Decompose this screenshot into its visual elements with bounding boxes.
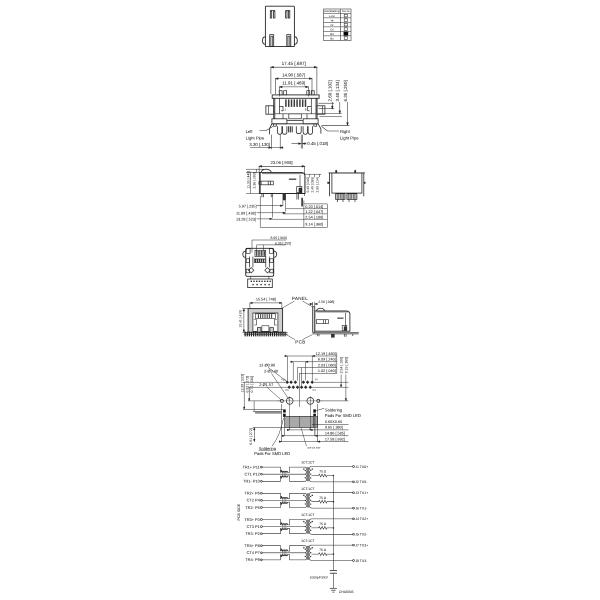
svg-text:14.86 [.585]: 14.86 [.585] xyxy=(325,432,345,436)
svg-text:CT3 P1: CT3 P1 xyxy=(247,524,260,529)
svg-text:1CT:1CT: 1CT:1CT xyxy=(301,513,314,517)
svg-text:CT2 P4: CT2 P4 xyxy=(247,498,261,503)
svg-text:PCB SIDE: PCB SIDE xyxy=(237,503,241,520)
svg-text:1: 1 xyxy=(284,108,286,112)
svg-text:TR2+ P6: TR2+ P6 xyxy=(244,491,259,496)
svg-text:1CT:1CT: 1CT:1CT xyxy=(301,539,314,543)
svg-text:anti-out hole: anti-out hole xyxy=(307,446,321,449)
svg-text:2.03 [.080]: 2.03 [.080] xyxy=(318,363,336,367)
svg-text:2.40 [.095]: 2.40 [.095] xyxy=(311,177,315,193)
svg-text:J8 TX3-: J8 TX3- xyxy=(355,559,368,563)
svg-text:Rd: Rd xyxy=(330,33,334,36)
svg-text:13.29 [.523]: 13.29 [.523] xyxy=(240,374,244,393)
svg-text:17.45 [.687]: 17.45 [.687] xyxy=(282,61,306,66)
svg-text:Light Pipe: Light Pipe xyxy=(340,136,359,141)
svg-text:0.45 [.018]: 0.45 [.018] xyxy=(307,141,328,146)
svg-text:0.76 [.030]: 0.76 [.030] xyxy=(250,376,254,393)
svg-text:0.40 [.016]: 0.40 [.016] xyxy=(306,177,310,193)
svg-text:P1: P1 xyxy=(313,389,317,392)
svg-text:9.14 [.360]: 9.14 [.360] xyxy=(305,223,323,227)
svg-text:5.97 [.235]: 5.97 [.235] xyxy=(239,205,257,209)
svg-text:75 Ω: 75 Ω xyxy=(319,522,327,526)
svg-text:J7 TX3+: J7 TX3+ xyxy=(355,543,368,547)
svg-text:TR3+ P3: TR3+ P3 xyxy=(244,517,259,522)
svg-text:75 Ω: 75 Ω xyxy=(319,496,327,500)
svg-text:75 Ω: 75 Ω xyxy=(319,548,327,552)
svg-text:2.54 [.100]: 2.54 [.100] xyxy=(340,357,344,374)
svg-text:23.06 [.908]: 23.06 [.908] xyxy=(270,160,292,165)
svg-text:J3 TX1+: J3 TX1+ xyxy=(355,491,368,495)
svg-text:15.54 [.748]: 15.54 [.748] xyxy=(256,298,276,302)
svg-text:3.30 [.130]: 3.30 [.130] xyxy=(249,142,270,147)
svg-text:PANEL: PANEL xyxy=(292,296,308,301)
svg-text:12.19 [.480]: 12.19 [.480] xyxy=(316,352,336,356)
svg-text:Right: Right xyxy=(340,129,351,134)
svg-text:11.89 [.438]: 11.89 [.438] xyxy=(236,211,256,215)
svg-text:10.41 [.410]: 10.41 [.410] xyxy=(238,310,242,327)
svg-text:11.91 [.469]: 11.91 [.469] xyxy=(282,81,305,86)
svg-text:1CT:1CT: 1CT:1CT xyxy=(301,461,314,465)
svg-text:0.20 [.014]: 0.20 [.014] xyxy=(305,205,323,209)
svg-text:TR1+ P11: TR1+ P11 xyxy=(242,464,259,469)
svg-text:Soldering: Soldering xyxy=(325,408,343,413)
svg-text:Pads For SMD LED: Pads For SMD LED xyxy=(325,413,361,418)
svg-text:6.91 [.272]: 6.91 [.272] xyxy=(249,428,253,445)
svg-text:6.35 [.250]: 6.35 [.250] xyxy=(343,80,348,101)
svg-text:11.30 [.445]: 11.30 [.445] xyxy=(247,171,251,189)
svg-text:CHASSIS: CHASSIS xyxy=(339,590,355,594)
svg-text:1.22 [.047]: 1.22 [.047] xyxy=(305,210,323,214)
svg-text:TR4+ P8: TR4+ P8 xyxy=(244,543,259,548)
svg-text:PCB: PCB xyxy=(295,339,305,344)
svg-text:P12: P12 xyxy=(281,378,286,381)
svg-text:Part No: Part No xyxy=(342,10,351,13)
svg-text:6.09 [.240]: 6.09 [.240] xyxy=(318,358,336,362)
svg-text:1CT:1CT: 1CT:1CT xyxy=(301,487,314,491)
svg-text:Left: Left xyxy=(246,129,254,134)
svg-text:2-Ø3.40: 2-Ø3.40 xyxy=(264,369,279,374)
svg-text:TR1- P10: TR1- P10 xyxy=(243,479,260,484)
svg-text:Ye: Ye xyxy=(330,19,334,22)
svg-text:9.15 [.360]: 9.15 [.360] xyxy=(344,357,348,374)
svg-text:2.36 [.093]: 2.36 [.093] xyxy=(252,172,256,188)
svg-text:14.90 [.587]: 14.90 [.587] xyxy=(282,72,305,77)
svg-text:2.54 [.100]: 2.54 [.100] xyxy=(305,215,323,219)
svg-text:13.28 [.523]: 13.28 [.523] xyxy=(236,217,256,221)
svg-text:Pads For SMD LED: Pads For SMD LED xyxy=(254,451,290,456)
svg-text:LED(Marking): LED(Marking) xyxy=(324,10,340,13)
svg-text:J1 TX0+: J1 TX0+ xyxy=(355,465,368,469)
svg-text:6.92 [.273]: 6.92 [.273] xyxy=(245,376,249,393)
svg-text:TR4- P9: TR4- P9 xyxy=(245,557,260,562)
svg-text:L-Gn: L-Gn xyxy=(329,15,335,18)
svg-text:17.58 [.692]: 17.58 [.692] xyxy=(325,437,345,441)
svg-text:9.65 [.380]: 9.65 [.380] xyxy=(325,426,343,430)
svg-text:2.60 [.102]: 2.60 [.102] xyxy=(328,80,333,101)
svg-text:J6 TX1-: J6 TX1- xyxy=(355,506,368,510)
svg-text:12-Ø0.90: 12-Ø0.90 xyxy=(259,363,276,368)
svg-text:3.40 [.134]: 3.40 [.134] xyxy=(335,80,340,101)
svg-text:J5 TX2-: J5 TX2- xyxy=(355,533,368,537)
svg-text:Bu: Bu xyxy=(330,37,334,40)
svg-text:2-Ø1.57: 2-Ø1.57 xyxy=(259,382,273,387)
svg-text:8.65 [.340]: 8.65 [.340] xyxy=(271,236,287,240)
svg-text:0.60X0.60: 0.60X0.60 xyxy=(325,420,342,424)
svg-text:TR2- P5: TR2- P5 xyxy=(245,505,260,510)
svg-text:CT4 P7: CT4 P7 xyxy=(247,550,260,555)
svg-text:75 Ω: 75 Ω xyxy=(319,470,327,474)
svg-text:P7: P7 xyxy=(315,378,319,381)
svg-text:J2 TX0-: J2 TX0- xyxy=(355,480,368,484)
svg-text:J4 TX2+: J4 TX2+ xyxy=(355,517,368,521)
svg-text:1000pF/2KV: 1000pF/2KV xyxy=(310,575,329,579)
svg-text:Light Pipe: Light Pipe xyxy=(246,136,265,141)
svg-text:2.50 [.098]: 2.50 [.098] xyxy=(318,300,334,304)
svg-text:1.02 [.040]: 1.02 [.040] xyxy=(318,369,336,373)
svg-text:8: 8 xyxy=(305,108,307,112)
svg-text:Gn: Gn xyxy=(330,28,334,31)
svg-text:2.90 [.114]: 2.90 [.114] xyxy=(316,177,320,192)
svg-text:Or: Or xyxy=(331,24,334,27)
svg-text:TR3- P2: TR3- P2 xyxy=(245,531,260,536)
svg-text:P6: P6 xyxy=(285,389,289,392)
svg-text:CT1 P12: CT1 P12 xyxy=(244,472,259,477)
